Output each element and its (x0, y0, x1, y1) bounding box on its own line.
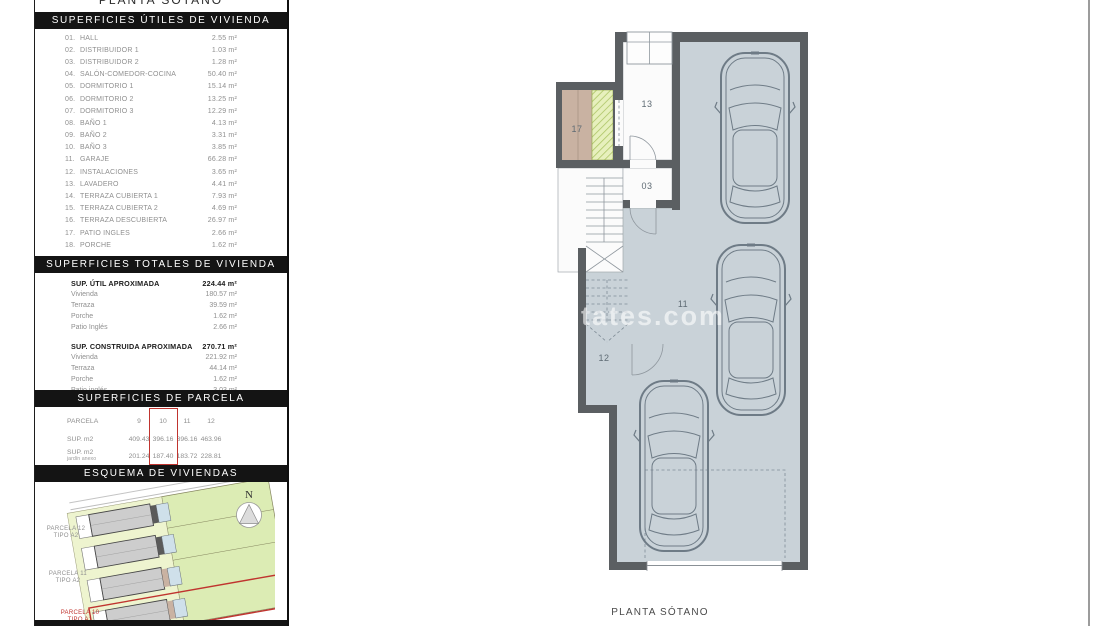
section-header-superficies-parcela: SUPERFICIES DE PARCELA (35, 390, 287, 407)
plan-caption: PLANTA SÓTANO (540, 607, 780, 618)
site-plan: N (65, 482, 275, 624)
area-list-item: 14. TERRAZA CUBIERTA 1 7.93 m² (35, 190, 287, 202)
item-value: 7.93 m² (212, 193, 237, 200)
patio-17 (562, 90, 613, 160)
useful-areas-list: 01. HALL 2.55 m² 02. DISTRIBUIDOR 1 1.03… (35, 32, 287, 251)
item-number: 14. (65, 193, 80, 200)
item-label: DISTRIBUIDOR 1 (80, 47, 212, 54)
room-label-03: 03 (641, 181, 652, 191)
area-list-item: 10. BAÑO 3 3.85 m² (35, 142, 287, 154)
totals-row: Vivienda 221.92 m² (35, 352, 287, 363)
item-label: PATIO INGLES (80, 230, 212, 237)
page-title: PLANTA SÓTANO (35, 0, 287, 7)
item-value: 15.14 m² (208, 83, 237, 90)
parcela-column-header: 11 (175, 418, 199, 425)
item-value: 13.25 m² (208, 96, 237, 103)
item-value: 4.41 m² (212, 181, 237, 188)
item-value: 12.29 m² (208, 108, 237, 115)
item-label: DORMITORIO 2 (80, 96, 208, 103)
item-number: 18. (65, 242, 80, 249)
item-number: 11. (65, 156, 80, 163)
item-number: 02. (65, 47, 80, 54)
room-label-13: 13 (641, 99, 652, 109)
parcela-value: 409.43 (127, 436, 151, 443)
item-label: TERRAZA CUBIERTA 2 (80, 205, 212, 212)
item-number: 03. (65, 59, 80, 66)
area-list-item: 02. DISTRIBUIDOR 1 1.03 m² (35, 44, 287, 56)
item-number: 07. (65, 108, 80, 115)
item-label: TERRAZA DESCUBIERTA (80, 217, 208, 224)
section-header-superficies-utiles: SUPERFICIES ÚTILES DE VIVIENDA (35, 12, 287, 29)
item-number: 17. (65, 230, 80, 237)
item-value: 2.66 m² (212, 230, 237, 237)
item-label: DORMITORIO 3 (80, 108, 208, 115)
totals-util-title: SUP. ÚTIL APROXIMADA (71, 279, 202, 288)
item-number: 09. (65, 132, 80, 139)
parcela-value: 396.16 (175, 436, 199, 443)
item-label: TERRAZA CUBIERTA 1 (80, 193, 212, 200)
area-list-item: 18. PORCHE 1.62 m² (35, 239, 287, 251)
item-number: 06. (65, 96, 80, 103)
area-list-item: 07. DORMITORIO 3 12.29 m² (35, 105, 287, 117)
parcel-block (65, 482, 275, 624)
item-label: BAÑO 3 (80, 144, 212, 151)
item-number: 01. (65, 35, 80, 42)
totals-row: Patio Inglés 2.66 m² (35, 322, 287, 333)
totals-row: Vivienda 180.57 m² (35, 289, 287, 300)
panel-bottom-bar (35, 620, 287, 626)
parcela-header-label: PARCELA (67, 418, 127, 425)
item-value: 4.13 m² (212, 120, 237, 127)
totals-row: Terraza 44.14 m² (35, 363, 287, 374)
item-value: 1.62 m² (212, 242, 237, 249)
page: { "page": { "top_title": "PLANTA SÓTANO"… (0, 0, 1110, 626)
item-number: 08. (65, 120, 80, 127)
area-list-item: 06. DORMITORIO 2 13.25 m² (35, 93, 287, 105)
item-value: 2.55 m² (212, 35, 237, 42)
room-label-17: 17 (571, 124, 582, 134)
item-label: HALL (80, 35, 212, 42)
area-list-item: 04. SALÓN-COMEDOR-COCINA 50.40 m² (35, 69, 287, 81)
totals-construida-value: 270.71 m² (202, 342, 237, 351)
totals-construida-title: SUP. CONSTRUIDA APROXIMADA (71, 342, 202, 351)
parcel-11-label: PARCELA 11 TIPO A2 (37, 571, 99, 585)
item-label: BAÑO 1 (80, 120, 212, 127)
totals-construida-header: SUP. CONSTRUIDA APROXIMADA 270.71 m² (35, 340, 287, 352)
item-number: 13. (65, 181, 80, 188)
area-list-item: 12. INSTALACIONES 3.65 m² (35, 166, 287, 178)
watermark: states.com (564, 301, 725, 331)
window-icon (627, 32, 672, 64)
item-number: 12. (65, 169, 80, 176)
item-value: 1.03 m² (212, 47, 237, 54)
totals-row: Porche 1.62 m² (35, 374, 287, 385)
highlighted-parcel-box (149, 408, 178, 465)
item-label: DISTRIBUIDOR 2 (80, 59, 212, 66)
item-label: LAVADERO (80, 181, 212, 188)
floor-plan: 17 13 03 11 12 states.com (552, 28, 812, 576)
item-value: 66.28 m² (208, 156, 237, 163)
page-right-border (1088, 0, 1090, 626)
area-list-item: 13. LAVADERO 4.41 m² (35, 178, 287, 190)
parcela-value: 228.81 (199, 453, 223, 460)
parcel-12-label: PARCELA 12 TIPO A2 (35, 526, 97, 540)
item-value: 3.85 m² (212, 144, 237, 151)
area-list-item: 03. DISTRIBUIDOR 2 1.28 m² (35, 56, 287, 68)
parcela-column-header: 12 (199, 418, 223, 425)
item-value: 50.40 m² (208, 71, 237, 78)
item-value: 4.69 m² (212, 205, 237, 212)
item-value: 3.31 m² (212, 132, 237, 139)
item-label: INSTALACIONES (80, 169, 212, 176)
area-list-item: 17. PATIO INGLES 2.66 m² (35, 227, 287, 239)
section-header-superficies-totales: SUPERFICIES TOTALES DE VIVIENDA (35, 256, 287, 273)
esquema-panel: N PARCELA 12 TIPO A2 PARCELA 11 TIPO A2 … (35, 482, 287, 626)
area-list-item: 05. DORMITORIO 1 15.14 m² (35, 81, 287, 93)
totals-util-header: SUP. ÚTIL APROXIMADA 224.44 m² (35, 277, 287, 289)
parcela-value: 183.72 (175, 453, 199, 460)
item-number: 04. (65, 71, 80, 78)
item-number: 16. (65, 217, 80, 224)
area-list-item: 01. HALL 2.55 m² (35, 32, 287, 44)
parcela-value: 463.96 (199, 436, 223, 443)
item-number: 05. (65, 83, 80, 90)
totals-util-rows: Vivienda 180.57 m² Terraza 39.59 m² Porc… (35, 289, 287, 333)
item-label: GARAJE (80, 156, 208, 163)
parcela-value: 201.24 (127, 453, 151, 460)
area-list-item: 15. TERRAZA CUBIERTA 2 4.69 m² (35, 203, 287, 215)
parcela-column-header: 9 (127, 418, 151, 425)
item-value: 26.97 m² (208, 217, 237, 224)
totals-row: Terraza 39.59 m² (35, 300, 287, 311)
area-list-item: 11. GARAJE 66.28 m² (35, 154, 287, 166)
item-label: BAÑO 2 (80, 132, 212, 139)
item-number: 15. (65, 205, 80, 212)
item-value: 3.65 m² (212, 169, 237, 176)
area-list-item: 16. TERRAZA DESCUBIERTA 26.97 m² (35, 215, 287, 227)
totals-row: Porche 1.62 m² (35, 311, 287, 322)
floor-plan-area: 17 13 03 11 12 states.com (552, 28, 812, 576)
item-label: SALÓN-COMEDOR-COCINA (80, 71, 208, 78)
item-number: 10. (65, 144, 80, 151)
north-letter: N (245, 489, 253, 501)
left-data-panel: PLANTA SÓTANO SUPERFICIES ÚTILES DE VIVI… (34, 0, 289, 626)
garage-door (647, 561, 782, 571)
item-label: DORMITORIO 1 (80, 83, 208, 90)
item-label: PORCHE (80, 242, 212, 249)
item-value: 1.28 m² (212, 59, 237, 66)
room-label-12: 12 (598, 353, 609, 363)
section-header-esquema: ESQUEMA DE VIVIENDAS (35, 465, 287, 482)
totals-block: SUP. ÚTIL APROXIMADA 224.44 m² Vivienda … (35, 277, 287, 396)
area-list-item: 08. BAÑO 1 4.13 m² (35, 117, 287, 129)
totals-util-value: 224.44 m² (202, 279, 237, 288)
area-list-item: 09. BAÑO 2 3.31 m² (35, 130, 287, 142)
parcela-table: PARCELA 9101112 SUP. m2 409.43396.16396.… (35, 407, 287, 465)
